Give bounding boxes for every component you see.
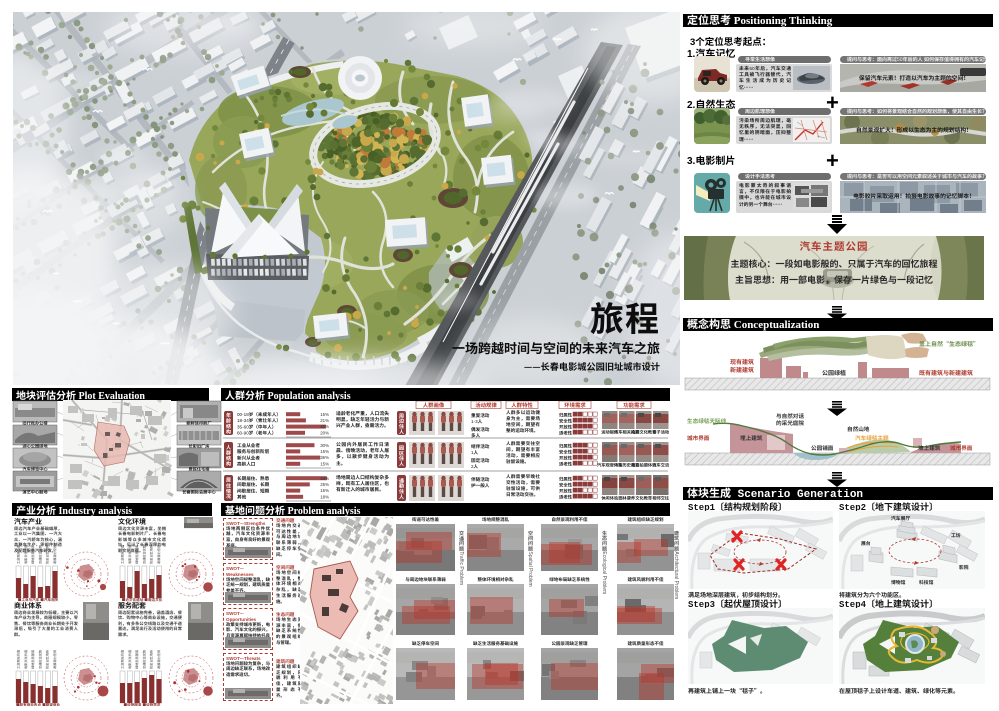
svg-text:公园绿植: 公园绿植 (822, 368, 846, 377)
svg-text:园林康养: 园林康养 (618, 496, 636, 502)
svg-text:发展潜力空间: 发展潜力空间 (52, 650, 57, 669)
svg-text:埋上建筑: 埋上建筑 (740, 434, 763, 442)
svg-text:长影旧厂房: 长影旧厂房 (189, 444, 210, 450)
svg-text:长期居住、熟悉: 长期居住、熟悉 (237, 476, 270, 482)
svg-text:朝鲜族印刷厂: 朝鲜族印刷厂 (186, 421, 211, 427)
svg-text:休闲体验: 休闲体验 (601, 496, 619, 502)
svg-text:间歇居住、长期: 间歇居住、长期 (237, 482, 270, 488)
svg-text:新兴从业者: 新兴从业者 (237, 455, 260, 461)
svg-text:公园铺面: 公园铺面 (811, 444, 834, 452)
svg-text:影院: 影院 (959, 564, 969, 571)
svg-text:坡上建筑: 坡上建筑 (918, 444, 941, 452)
svg-text:汽车展厅: 汽车展厅 (891, 515, 910, 522)
svg-text:人群特性: 人群特性 (511, 401, 533, 409)
svg-text:旧行政办公楼: 旧行政办公楼 (22, 421, 48, 427)
svg-text:工业从业者: 工业从业者 (237, 443, 260, 449)
svg-text:15%: 15% (320, 461, 329, 467)
svg-text:交通区位优势: 交通区位优势 (141, 649, 146, 669)
svg-text:发展潜力空间: 发展潜力空间 (156, 650, 161, 669)
svg-text:60-90岁（老年人）: 60-90岁（老年人） (237, 431, 276, 437)
svg-text:绿地生态基底: 绿地生态基底 (134, 649, 139, 669)
svg-text:城市界面: 城市界面 (687, 434, 710, 442)
svg-text:18-34岁（青壮年人）: 18-34岁（青壮年人） (237, 418, 281, 424)
svg-text:历史记忆场所: 历史记忆场所 (45, 649, 50, 669)
svg-text:适老性: 适老性 (559, 461, 573, 467)
svg-text:演艺中心剧场: 演艺中心剧场 (22, 490, 48, 496)
svg-text:新建建筑: 新建建筑 (730, 365, 754, 374)
svg-text:间歇居住、短期: 间歇居住、短期 (237, 488, 270, 494)
svg-text:博物馆: 博物馆 (891, 579, 906, 586)
svg-text:活动规律: 活动规律 (475, 401, 497, 409)
svg-text:科技馆: 科技馆 (919, 579, 934, 586)
svg-text:环境需求: 环境需求 (564, 401, 586, 409)
svg-text:25%: 25% (320, 482, 329, 488)
svg-text:■设施服务 ■设施需求: ■设施服务 ■设施需求 (124, 702, 161, 706)
svg-text:30%: 30% (320, 443, 329, 449)
svg-text:汽车交流: 汽车交流 (652, 463, 670, 469)
svg-text:盖上自然“生态绿毯”: 盖上自然“生态绿毯” (919, 339, 979, 348)
svg-text:亲子活动: 亲子活动 (652, 430, 669, 436)
svg-text:15%: 15% (320, 412, 329, 418)
svg-text:42%: 42% (320, 424, 329, 430)
svg-text:电影文化价值: 电影文化价值 (127, 649, 132, 669)
svg-text:1人: 1人 (471, 450, 479, 456)
svg-text:长春国际会展中心: 长春国际会展中心 (182, 490, 216, 496)
svg-text:相邻交往: 相邻交往 (652, 496, 670, 502)
svg-text:电影文化价值: 电影文化价值 (23, 649, 28, 669)
svg-text:护一般人: 护一般人 (471, 483, 490, 489)
svg-text:自然山地: 自然山地 (847, 425, 870, 433)
svg-text:生态绿毯天际线: 生态绿毯天际线 (687, 417, 727, 425)
svg-text:既有建筑与新建建筑: 既有建筑与新建建筑 (919, 368, 973, 377)
svg-text:功能需求: 功能需求 (623, 401, 645, 409)
svg-text:43%: 43% (320, 476, 329, 482)
svg-text:18%: 18% (320, 494, 329, 500)
svg-text:1-3人: 1-3人 (471, 419, 483, 425)
svg-text:20%: 20% (320, 430, 329, 436)
svg-text:其他: 其他 (237, 495, 247, 501)
svg-text:工业观光价值: 工业观光价值 (16, 649, 21, 669)
svg-text:的采光庭院: 的采光庭院 (776, 419, 804, 427)
svg-text:历史记忆场所: 历史记忆场所 (149, 649, 154, 669)
svg-text:适老性: 适老性 (559, 430, 573, 436)
svg-text:00-18岁（未成年人）: 00-18岁（未成年人） (237, 412, 281, 418)
svg-text:15%: 15% (320, 449, 329, 455)
svg-text:15%: 15% (320, 488, 329, 494)
svg-text:工业观光价值: 工业观光价值 (120, 649, 125, 669)
svg-text:36%: 36% (320, 455, 329, 461)
svg-text:35-60岁（中年人）: 35-60岁（中年人） (237, 424, 276, 430)
svg-text:工坊: 工坊 (951, 532, 961, 539)
svg-text:服务与创新阶层: 服务与创新阶层 (237, 449, 270, 455)
svg-text:适老性: 适老性 (559, 494, 573, 500)
svg-text:人群画像: 人群画像 (423, 401, 445, 409)
svg-text:交通区位优势: 交通区位优势 (37, 649, 42, 669)
svg-text:■既有商业布点 ■期望商业: ■既有商业布点 ■期望商业 (16, 702, 61, 706)
svg-text:城市界面: 城市界面 (950, 444, 973, 452)
svg-text:21%: 21% (320, 418, 329, 424)
svg-text:汽车博览中心: 汽车博览中心 (22, 467, 48, 473)
svg-text:居民住宅楼: 居民住宅楼 (189, 467, 211, 473)
svg-text:绿地生态基底: 绿地生态基底 (30, 649, 35, 669)
svg-text:汽车绿毯主题: 汽车绿毯主题 (855, 434, 889, 442)
svg-text:湖心公园绿地: 湖心公园绿地 (22, 444, 48, 450)
svg-text:2人: 2人 (471, 464, 479, 470)
svg-text:高龄人口: 高龄人口 (237, 462, 256, 468)
svg-text:文化教育: 文化教育 (635, 496, 652, 502)
svg-text:展台: 展台 (861, 540, 871, 547)
